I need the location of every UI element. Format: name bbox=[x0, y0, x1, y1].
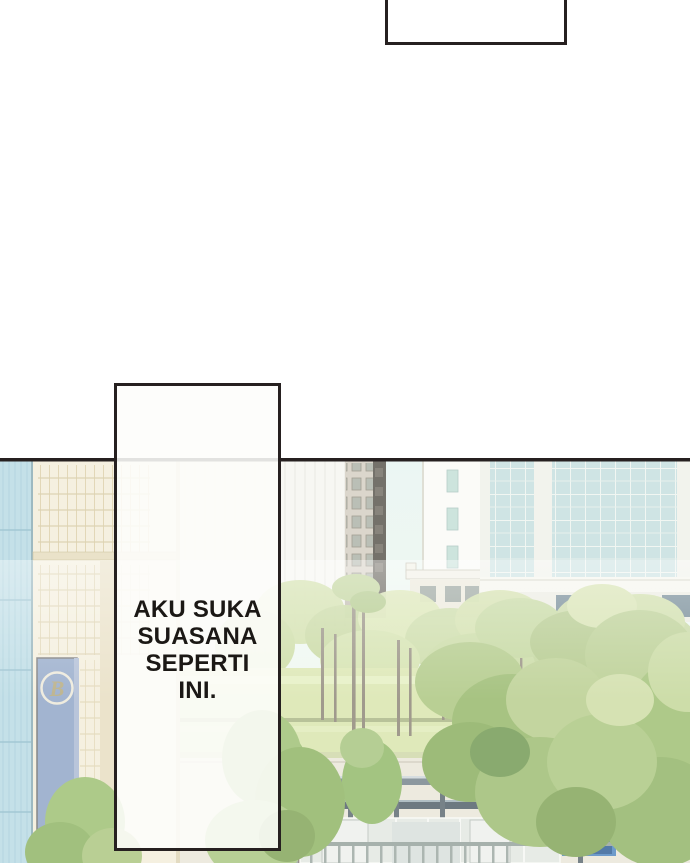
dialogue-line-4: INI. bbox=[117, 677, 278, 704]
dialogue-line-1: AKU SUKA bbox=[117, 596, 278, 623]
comic-page: B bbox=[0, 0, 690, 863]
speech-bubble-top bbox=[385, 0, 567, 45]
panel-border-line bbox=[0, 458, 690, 462]
haze-band bbox=[0, 560, 690, 700]
speech-bubble-dialogue: AKU SUKA SUASANA SEPERTI INI. bbox=[114, 383, 281, 851]
dialogue-line-3: SEPERTI bbox=[117, 650, 278, 677]
dialogue-text: AKU SUKA SUASANA SEPERTI INI. bbox=[117, 596, 278, 704]
city-panel-illustration: B bbox=[0, 0, 690, 863]
dialogue-line-2: SUASANA bbox=[117, 623, 278, 650]
